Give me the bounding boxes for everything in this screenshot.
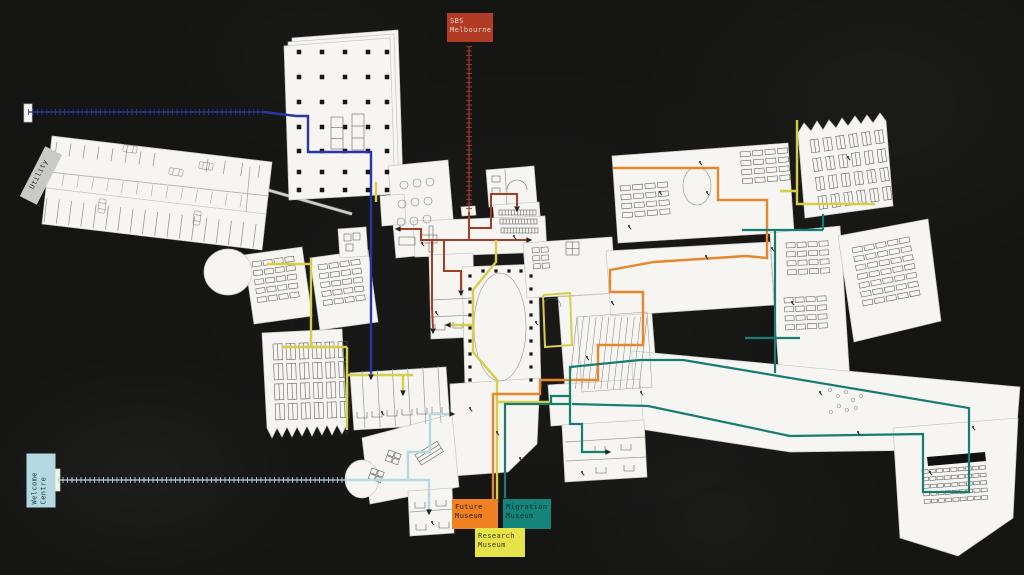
building-big-south [450, 378, 540, 476]
building-rooms-top [486, 166, 537, 207]
building-annex-se [893, 418, 1018, 556]
label-research-museum[interactable]: Research Museum [475, 528, 525, 557]
building-small-room [338, 227, 368, 258]
building-rooms-ne [523, 237, 616, 298]
label-future-museum[interactable]: Future Museum [452, 499, 498, 529]
building-gallery-right-mid [606, 242, 774, 316]
site-map-svg [0, 0, 1024, 575]
label-welcome-centre[interactable]: Welcome Centre [27, 454, 56, 508]
building-small-room-2 [380, 194, 406, 226]
label-migration-museum[interactable]: Migration Museum [503, 499, 551, 529]
person-figure-icon [291, 321, 294, 325]
person-figure-icon [745, 331, 748, 335]
site-map: SBS Melbourne Utility Welcome Centre Fut… [0, 0, 1024, 575]
building-gallery-ne2 [838, 219, 941, 342]
building-round-plaza [204, 249, 252, 295]
building-sawtooth-north [798, 113, 893, 218]
building-rooms-se-a [548, 379, 643, 426]
person-figure-icon [567, 199, 570, 203]
label-sbs-melbourne[interactable]: SBS Melbourne [447, 13, 493, 42]
route-red-3 [432, 240, 433, 328]
building-column-hall [284, 38, 395, 200]
route-arrow-icon [344, 430, 350, 436]
